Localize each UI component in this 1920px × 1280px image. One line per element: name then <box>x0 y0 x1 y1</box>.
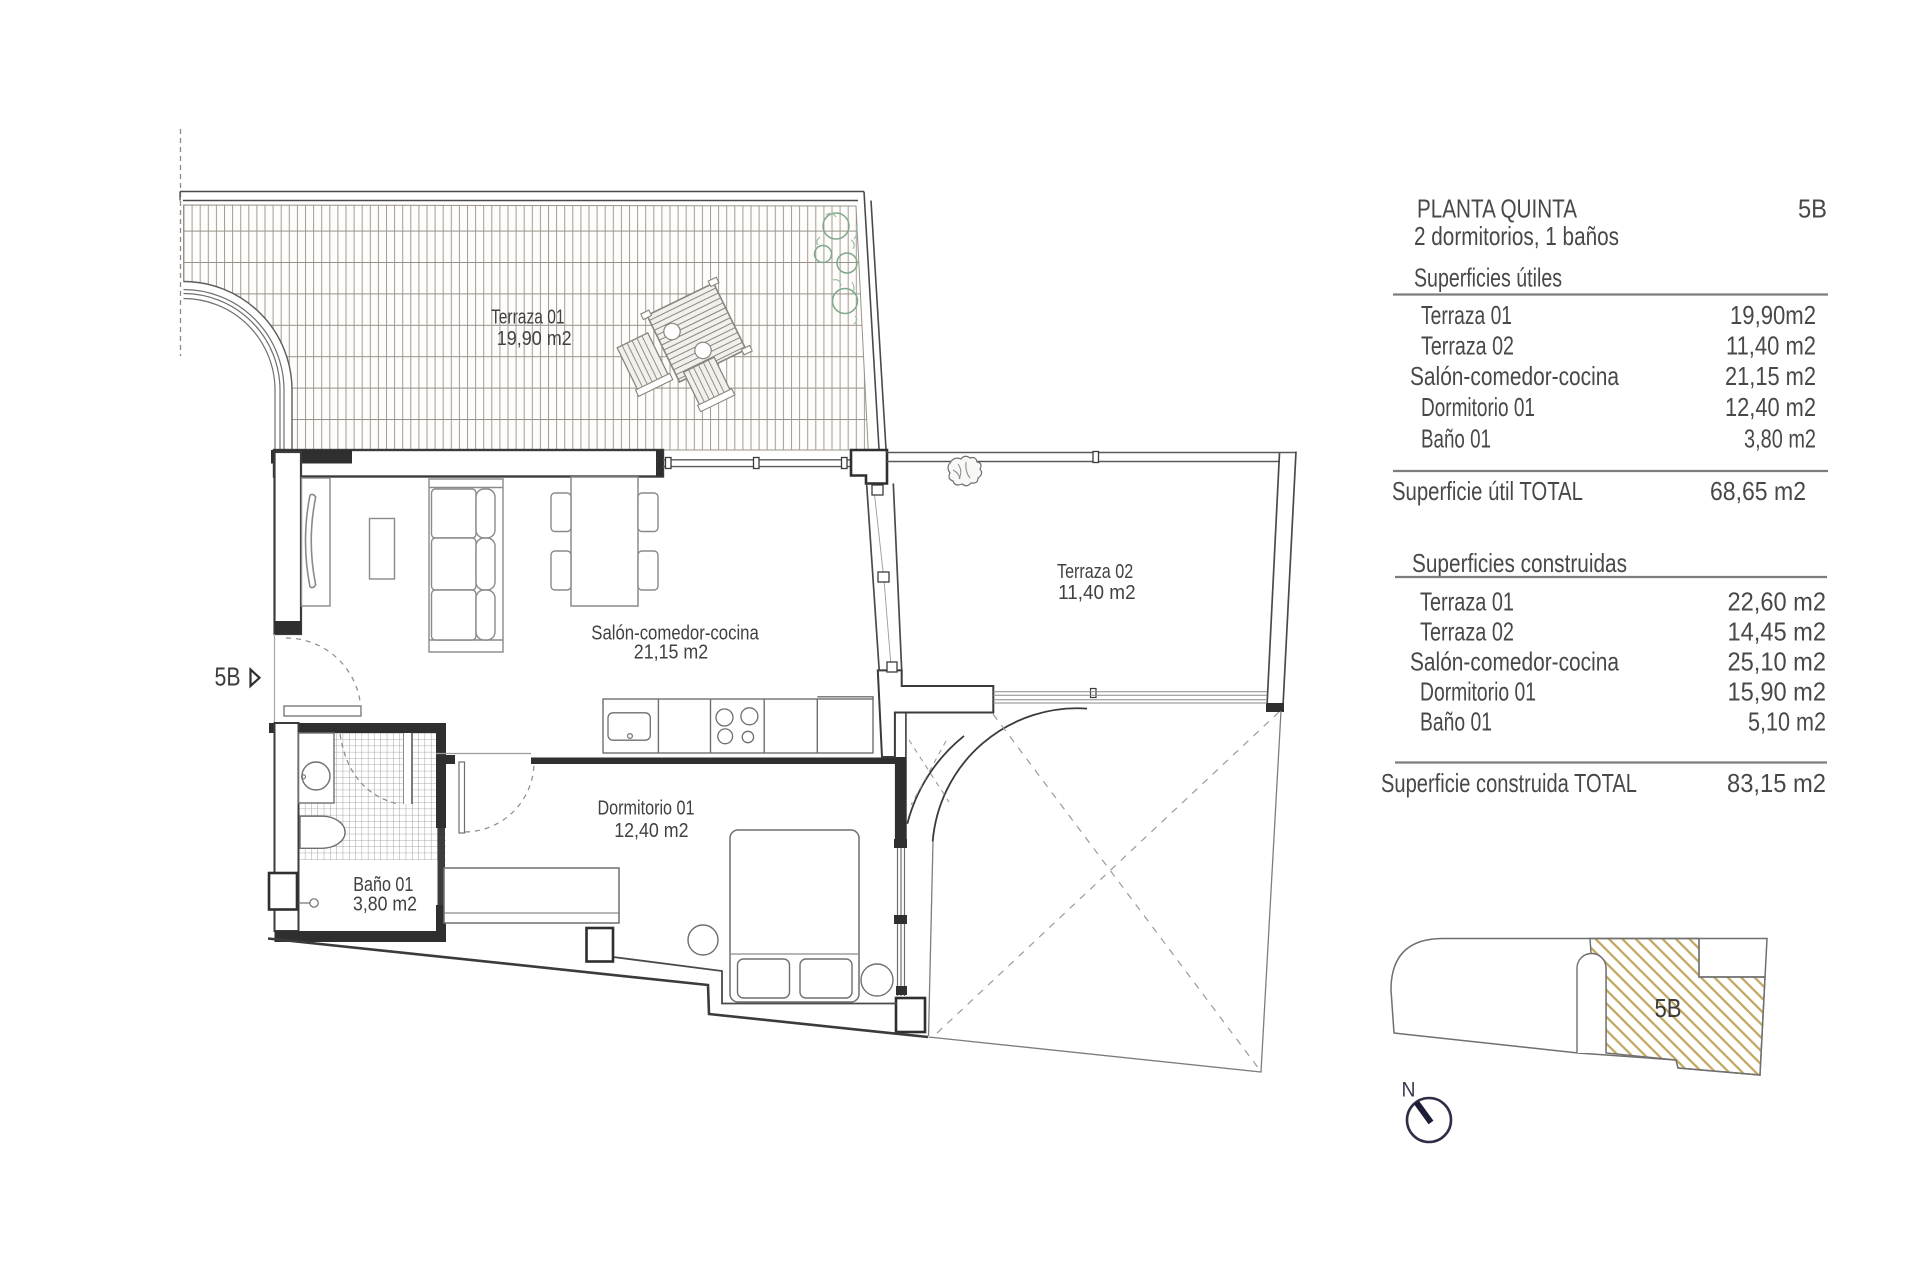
svg-text:5B: 5B <box>1655 993 1682 1023</box>
svg-text:22,60 m2: 22,60 m2 <box>1728 587 1827 617</box>
svg-text:83,15 m2: 83,15 m2 <box>1727 768 1826 798</box>
svg-text:N: N <box>1402 1078 1416 1102</box>
svg-text:Salón-comedor-cocina: Salón-comedor-cocina <box>1410 647 1619 677</box>
svg-text:Salón-comedor-cocina: Salón-comedor-cocina <box>1410 361 1619 391</box>
svg-text:Terraza 01: Terraza 01 <box>1420 587 1514 617</box>
svg-text:11,40 m2: 11,40 m2 <box>1058 581 1136 604</box>
svg-text:3,80 m2: 3,80 m2 <box>353 892 417 915</box>
svg-text:2 dormitorios, 1 baños: 2 dormitorios, 1 baños <box>1414 221 1619 251</box>
svg-text:Terraza 01: Terraza 01 <box>491 306 565 329</box>
svg-text:5B: 5B <box>1798 194 1827 224</box>
svg-text:Superficie útil TOTAL: Superficie útil TOTAL <box>1392 476 1583 506</box>
svg-text:Superficies construidas: Superficies construidas <box>1412 548 1627 578</box>
svg-text:21,15 m2: 21,15 m2 <box>634 640 708 663</box>
svg-text:5B: 5B <box>215 662 241 692</box>
svg-text:Dormitorio 01: Dormitorio 01 <box>1421 392 1535 422</box>
svg-text:19,90 m2: 19,90 m2 <box>497 327 572 350</box>
svg-text:25,10 m2: 25,10 m2 <box>1728 647 1827 677</box>
svg-text:12,40 m2: 12,40 m2 <box>1725 392 1816 422</box>
svg-text:PLANTA QUINTA: PLANTA QUINTA <box>1417 194 1578 224</box>
svg-text:Baño 01: Baño 01 <box>1421 424 1491 454</box>
svg-text:14,45 m2: 14,45 m2 <box>1728 617 1827 647</box>
svg-text:19,90m2: 19,90m2 <box>1730 300 1816 330</box>
svg-text:Terraza 02: Terraza 02 <box>1420 617 1514 647</box>
svg-text:5,10 m2: 5,10 m2 <box>1748 707 1826 737</box>
svg-text:11,40 m2: 11,40 m2 <box>1726 331 1816 361</box>
svg-text:Terraza 01: Terraza 01 <box>1421 300 1512 330</box>
svg-text:68,65 m2: 68,65 m2 <box>1710 476 1806 506</box>
svg-text:Dormitorio 01: Dormitorio 01 <box>598 796 695 819</box>
svg-text:12,40 m2: 12,40 m2 <box>614 819 688 842</box>
svg-text:Terraza 02: Terraza 02 <box>1421 331 1514 361</box>
svg-text:Dormitorio 01: Dormitorio 01 <box>1420 677 1536 707</box>
svg-text:Terraza 02: Terraza 02 <box>1057 560 1133 583</box>
svg-text:21,15 m2: 21,15 m2 <box>1725 361 1816 391</box>
svg-text:3,80 m2: 3,80 m2 <box>1744 424 1816 454</box>
svg-text:15,90 m2: 15,90 m2 <box>1728 677 1827 707</box>
svg-text:Superficies útiles: Superficies útiles <box>1414 263 1562 293</box>
svg-text:Superficie construida TOTAL: Superficie construida TOTAL <box>1381 768 1637 798</box>
svg-text:Baño 01: Baño 01 <box>1420 707 1492 737</box>
